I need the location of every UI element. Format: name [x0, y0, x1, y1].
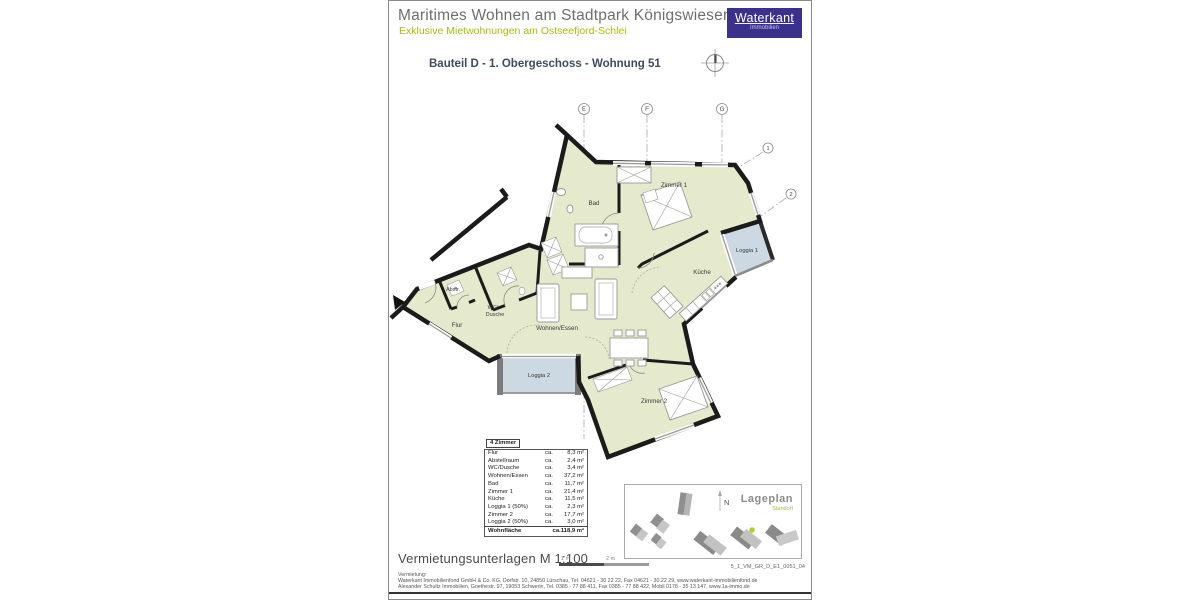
room-label-zimmer2: Zimmer 2 — [641, 398, 668, 405]
table-row: Kücheca.11,5 m² — [485, 496, 587, 504]
shower — [585, 248, 618, 267]
page-title: Maritimes Wohnen am Stadtpark Königswies… — [398, 7, 732, 25]
logo-name: Waterkant — [727, 11, 802, 25]
table-row: WC/Duscheca.3,4 m² — [485, 465, 587, 473]
section-marker-2: 2 — [789, 192, 792, 198]
page-subtitle: Exklusive Mietwohnungen am Ostseefjord-S… — [399, 25, 627, 37]
document-page: Maritimes Wohnen am Stadtpark Königswies… — [388, 0, 812, 600]
siteplan-title: Lageplan — [741, 493, 793, 505]
bottom-rule — [389, 592, 811, 594]
room-label-kueche: Küche — [693, 269, 711, 276]
contact-line-2: Alexander Schultz Immobilien, Goethestr.… — [398, 585, 805, 591]
scale-segment-1: 1 m — [559, 556, 604, 566]
area-table: 4 Zimmer Flurca.8,3 m² Abstellraumca.2,4… — [484, 439, 588, 537]
area-table-header: 4 Zimmer — [486, 439, 520, 448]
table-total-row: Wohnflächeca.118,9 m² — [485, 526, 587, 536]
floor-plan: E F G 1 2 Zimmer 1 Bad Küche Loggia 1 Wo… — [389, 97, 812, 465]
dining-table — [610, 330, 648, 366]
table-row: Loggia 1 (50%)ca.2,3 m² — [485, 503, 587, 511]
room-label-dusche: Dusche — [486, 312, 505, 318]
standort-marker — [749, 527, 755, 533]
room-label-flur: Flur — [452, 322, 463, 329]
coffee-table — [571, 294, 587, 310]
room-label-loggia1: Loggia 1 — [736, 248, 758, 254]
room-label-loggia2: Loggia 2 — [528, 373, 550, 379]
scale-bar: 1 m 2 m — [559, 556, 649, 566]
wardrobe-zimmer1 — [617, 167, 651, 183]
siteplan-north-label: N — [724, 498, 729, 507]
table-row: Wohnen/Essenca.37,2 m² — [485, 473, 587, 481]
room-label-wc: WC/ — [488, 305, 499, 311]
section-marker-1: 1 — [766, 146, 769, 152]
bathtub — [575, 224, 618, 246]
table-row: Loggia 2 (50%)ca.3,0 m² — [485, 519, 587, 527]
table-row: Zimmer 1ca.21,4 m² — [485, 488, 587, 496]
area-table-body: Flurca.8,3 m² Abstellraumca.2,4 m² WC/Du… — [484, 449, 588, 538]
room-label-abstellraum: Abstr. — [446, 287, 461, 293]
scale-segment-2: 2 m — [604, 556, 649, 566]
sofa-right — [595, 279, 617, 319]
table-row: Flurca.8,3 m² — [485, 450, 587, 458]
sideboard — [562, 267, 592, 278]
table-row: Zimmer 2ca.17,7 m² — [485, 511, 587, 519]
grid-label-e: E — [582, 107, 586, 113]
room-label-zimmer1: Zimmer 1 — [661, 182, 688, 189]
contact-block: Vermietung: Waterkant Immobilienfond Gmb… — [398, 573, 805, 591]
table-row: Abstellraumca.2,4 m² — [485, 457, 587, 465]
grid-label-g: G — [720, 107, 725, 113]
room-label-bad: Bad — [588, 200, 600, 207]
table-row: Badca.11,7 m² — [485, 480, 587, 488]
room-label-wohnen-essen: Wohnen/Essen — [536, 325, 578, 332]
sofa-left — [537, 284, 559, 322]
document-code: 5_1_VM_GR_D_E1_0051_04 — [731, 564, 805, 570]
siteplan-subtitle: Standort — [772, 506, 793, 512]
grid-label-f: F — [645, 107, 649, 113]
company-logo: Waterkant Immobilien — [727, 8, 802, 38]
north-indicator-icon — [701, 49, 729, 77]
siteplan-north: N — [718, 490, 729, 511]
logo-tagline: Immobilien — [727, 25, 802, 31]
plan-title: Bauteil D - 1. Obergeschoss - Wohnung 51 — [429, 58, 661, 70]
site-plan: N Lageplan Standort — [624, 484, 802, 559]
